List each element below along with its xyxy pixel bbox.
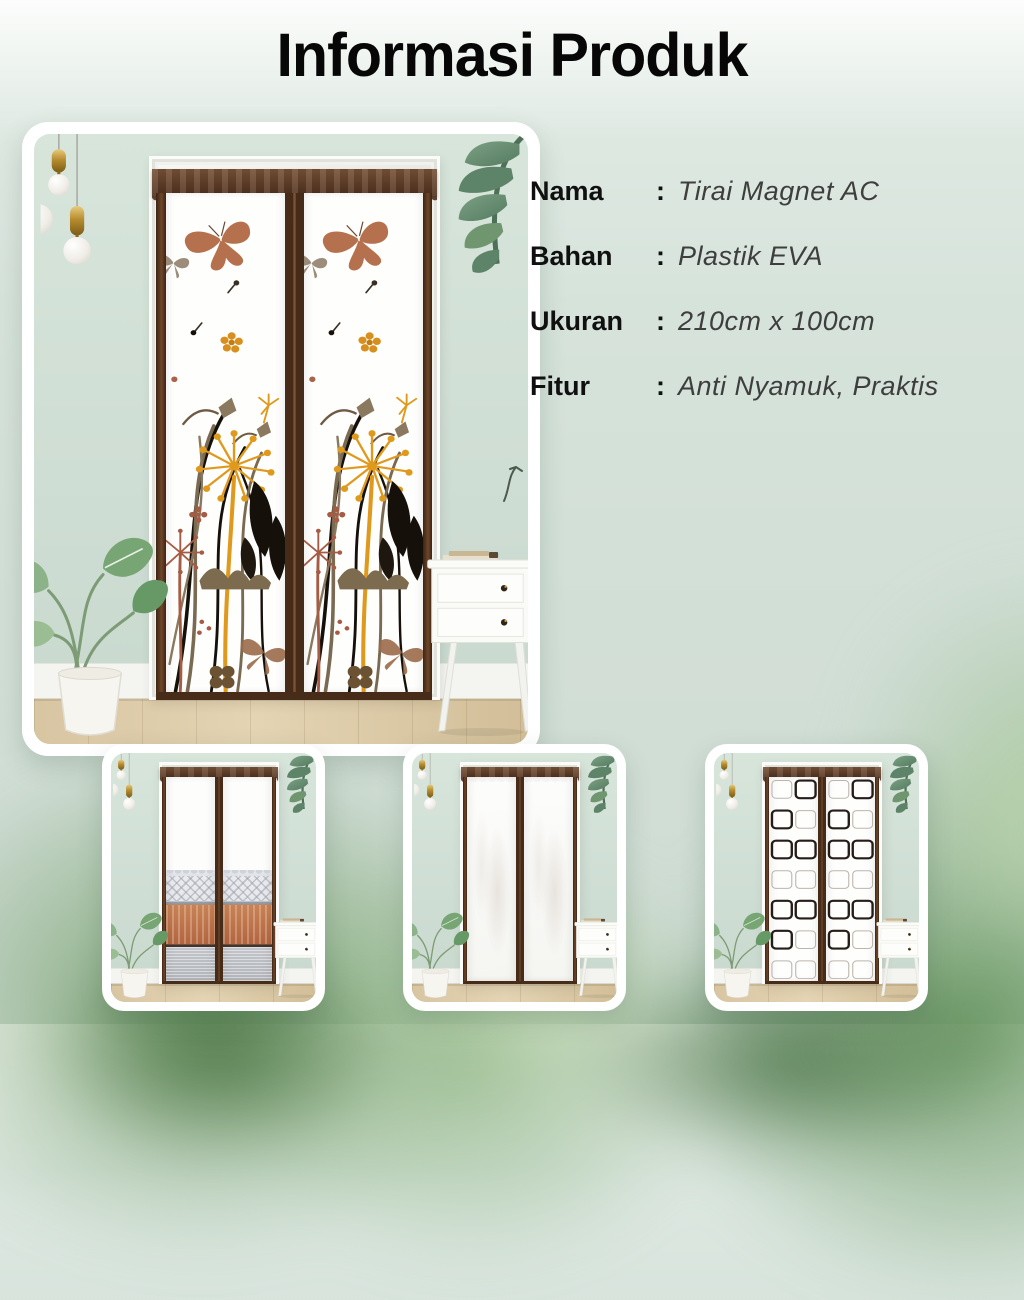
- curtain-panel-left: [166, 777, 216, 980]
- curtain-bottom-strip: [765, 981, 880, 984]
- monstera-leaf-icon: [881, 753, 919, 816]
- curtain-panel-right: [826, 777, 876, 980]
- pendant-lamps-icon: [716, 753, 743, 815]
- info-separator: :: [656, 306, 678, 337]
- main-product-photo: [22, 122, 540, 756]
- pendant-lamps-icon: [40, 134, 102, 276]
- product-info: Nama : Tirai Magnet AC Bahan : Plastik E…: [530, 176, 1010, 436]
- pendant-lamps-icon: [414, 753, 441, 815]
- magnetic-door-curtain: [463, 767, 578, 984]
- magnetic-door-curtain: [156, 169, 432, 700]
- room-scene: [34, 134, 528, 744]
- curtain-panel-left: [769, 777, 819, 980]
- door-frame: [762, 762, 883, 984]
- curtain-magnet-strip: [285, 193, 304, 700]
- room-scene: [412, 753, 617, 1002]
- square-print-icon: [826, 777, 876, 980]
- info-label: Nama: [530, 176, 656, 207]
- curtain-valance: [152, 169, 437, 196]
- info-value: Tirai Magnet AC: [678, 176, 1010, 207]
- curtain-panel-left: [467, 777, 517, 980]
- door-frame: [460, 762, 581, 984]
- info-label: Fitur: [530, 371, 656, 402]
- monstera-leaf-icon: [278, 753, 316, 816]
- door-frame: [159, 762, 280, 984]
- info-value: Plastik EVA: [678, 241, 1010, 272]
- info-separator: :: [656, 371, 678, 402]
- curtain-panel-right: [223, 777, 273, 980]
- curtain-magnet-strip: [818, 777, 826, 984]
- curtain-panel-left: [166, 193, 285, 691]
- thumbnail-variant-3: [705, 744, 928, 1011]
- nightstand-icon: [273, 918, 316, 998]
- potted-plant-icon: [412, 899, 472, 999]
- curtain-panel-right: [524, 777, 574, 980]
- info-label: Ukuran: [530, 306, 656, 337]
- curtain-bottom-strip: [162, 981, 277, 984]
- potted-plant-icon: [111, 899, 171, 999]
- magnetic-door-curtain: [162, 767, 277, 984]
- info-row-fitur: Fitur : Anti Nyamuk, Praktis: [530, 371, 1010, 436]
- info-separator: :: [656, 176, 678, 207]
- monstera-leaf-icon: [438, 134, 528, 280]
- room-scene: [111, 753, 316, 1002]
- info-row-ukuran: Ukuran : 210cm x 100cm: [530, 306, 1010, 371]
- dandelion-print-icon: [166, 193, 285, 691]
- dark-sprig-icon: [500, 463, 526, 503]
- dandelion-print-icon: [304, 193, 423, 691]
- curtain-panel-right: [304, 193, 423, 691]
- info-separator: :: [656, 241, 678, 272]
- nightstand-icon: [876, 918, 919, 998]
- monstera-leaf-icon: [579, 753, 617, 816]
- curtain-magnet-strip: [516, 777, 524, 984]
- thumbnail-variant-1: [102, 744, 325, 1011]
- room-scene: [714, 753, 919, 1002]
- info-value: 210cm x 100cm: [678, 306, 1010, 337]
- info-label: Bahan: [530, 241, 656, 272]
- curtain-bottom-strip: [156, 692, 432, 700]
- nightstand-icon: [426, 550, 528, 736]
- info-row-nama: Nama : Tirai Magnet AC: [530, 176, 1010, 241]
- page-title: Informasi Produk: [15, 20, 1008, 90]
- square-print-icon: [769, 777, 819, 980]
- curtain-bottom-strip: [463, 981, 578, 984]
- info-row-bahan: Bahan : Plastik EVA: [530, 241, 1010, 306]
- door-frame: [149, 156, 440, 700]
- thumbnail-variant-2: [403, 744, 626, 1011]
- potted-plant-icon: [714, 899, 774, 999]
- potted-plant-icon: [34, 506, 174, 738]
- info-value: Anti Nyamuk, Praktis: [678, 371, 1010, 402]
- nightstand-icon: [574, 918, 617, 998]
- magnetic-door-curtain: [765, 767, 880, 984]
- pendant-lamps-icon: [113, 753, 140, 815]
- curtain-magnet-strip: [215, 777, 223, 984]
